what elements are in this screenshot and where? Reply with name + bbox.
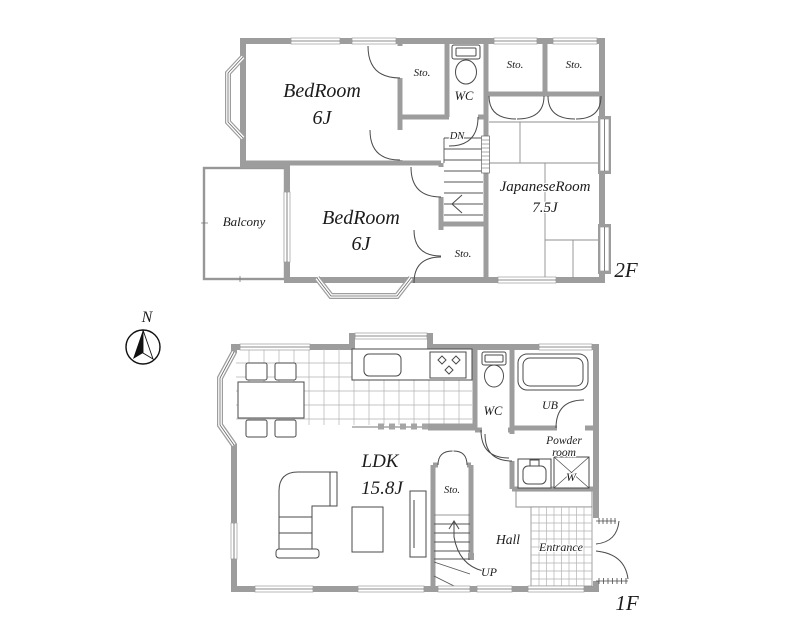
chair-icon <box>275 363 296 380</box>
coffee-table-icon <box>352 507 383 552</box>
storage-top-label: Sto. <box>414 67 431 79</box>
entrance-area <box>516 491 592 586</box>
japanese-room-size: 7.5J <box>532 200 559 216</box>
ldk-size: 15.8J <box>361 478 404 499</box>
balcony-label: Balcony <box>223 214 266 229</box>
entrance-door-icon <box>593 518 629 584</box>
floor-2f: BedRoom 6J Sto. WC Sto. Sto. JapaneseRoo… <box>201 38 638 296</box>
sink-icon <box>364 354 401 376</box>
bath-label: UB <box>542 398 559 412</box>
tv-board-icon <box>410 491 426 557</box>
floor-2f-label: 2F <box>614 258 638 282</box>
washbasin-icon <box>518 459 551 488</box>
japanese-room-name: JapaneseRoom <box>500 179 591 195</box>
stairs-up-label: UP <box>481 565 498 579</box>
chair-icon <box>246 420 267 437</box>
chair-icon <box>275 420 296 437</box>
powder-room-label-2: room <box>552 447 576 459</box>
stairs-up-icon <box>434 515 483 588</box>
floor-plan-image: BedRoom 6J Sto. WC Sto. Sto. JapaneseRoo… <box>0 0 800 641</box>
stairs-down-label: DN <box>449 131 466 142</box>
bedroom-bottom-name: BedRoom <box>322 207 400 229</box>
powder-room-label-1: Powder <box>545 435 582 447</box>
compass-north-label: N <box>141 309 154 326</box>
kitchen-counter <box>352 349 472 380</box>
toilet-icon-2f <box>452 45 480 84</box>
wc-1f-label: WC <box>484 404 503 418</box>
floor-1f-label: 1F <box>615 591 639 615</box>
closet-doors-2f <box>489 96 601 119</box>
dining-table-icon <box>238 363 304 437</box>
toilet-icon-1f <box>482 352 506 387</box>
floor-plan-page: BedRoom 6J Sto. WC Sto. Sto. JapaneseRoo… <box>0 0 800 641</box>
wc-2f-label: WC <box>455 89 474 103</box>
bedroom-top-size: 6J <box>313 107 333 129</box>
sofa-icon <box>276 472 337 558</box>
bathtub-icon <box>518 354 588 390</box>
stove-icon <box>430 352 466 378</box>
washer-label: W <box>566 470 577 484</box>
bedroom-bottom-size: 6J <box>352 233 372 255</box>
storage-right2-label: Sto. <box>566 59 583 71</box>
bay-window-1f-left <box>220 352 234 445</box>
stairs-down-icon <box>444 136 490 215</box>
storage-1f-label: Sto. <box>444 485 460 496</box>
compass-icon: N <box>126 309 160 364</box>
entrance-label: Entrance <box>538 540 584 554</box>
bedroom-top-name: BedRoom <box>283 80 361 102</box>
chair-icon <box>246 363 267 380</box>
ldk-name: LDK <box>361 451 400 472</box>
storage-bottom-label: Sto. <box>455 248 472 260</box>
storage-right1-label: Sto. <box>507 59 524 71</box>
floor-1f: LDK 15.8J WC UB Powder room W Sto. Hall … <box>220 333 639 615</box>
hall-label: Hall <box>495 532 520 547</box>
